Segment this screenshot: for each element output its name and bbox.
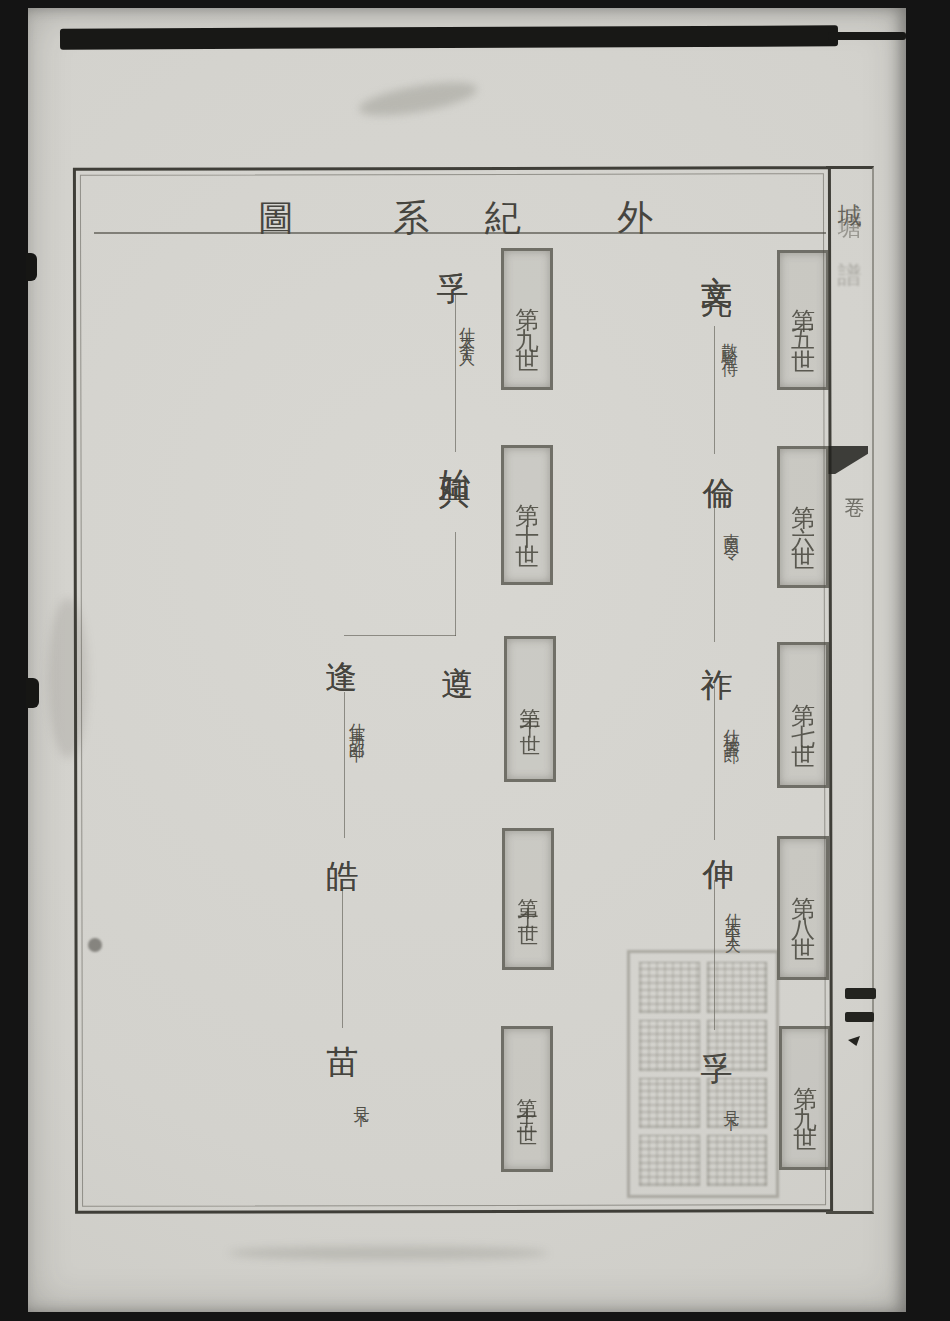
person-office-annotation: 仕秘書郎 [720,716,742,828]
page-title-char: 系 [393,194,429,243]
page-title-char: 紀 [485,194,521,243]
person-name: 皓 [324,834,362,842]
page-title-char: 圖 [258,194,294,243]
person-office-annotation: 散騎常侍 [718,330,740,442]
lineage-line [455,532,456,636]
person-name: 文亮 [698,250,736,266]
lineage-line [714,326,715,454]
lineage-line [714,684,715,840]
seal-glyph-cell [639,1078,700,1129]
paper-sheet: 城塘□譜 卷一 圖 系 紀 外 文亮 散騎常侍 第五世 倫 南昌令 第六世 祚 … [28,8,906,1312]
person-office-annotation: 仕太子舍人 [430,314,478,406]
lineage-line [714,494,715,642]
person-name: 伸 [700,834,738,842]
margin-book-title: 城塘□譜 [832,184,867,252]
margin-book-title-char: 譜 [836,242,864,252]
generation-stamp: 第十二世 [502,828,554,970]
page-edge-tear [26,678,39,708]
margin-book-title-char: 塘 [836,194,864,204]
ink-smudge [845,988,876,999]
seal-glyph-cell [639,962,700,1013]
person-name: 孚 [434,246,472,254]
generation-stamp: 第九世 [501,248,553,390]
seal-glyph-cell [639,1020,700,1071]
see-below-note: 見下 [350,1094,372,1158]
margin-volume-label: 卷一 [840,482,870,498]
lineage-line [342,884,343,1028]
paper-crease [357,76,480,122]
generation-stamp: 第十世 [501,445,553,585]
generation-stamp: 第六世 [777,446,829,588]
person-office-annotation: 南昌令 [720,520,742,610]
seal-glyph-cell [707,1078,768,1129]
binding-shadow-bar [60,25,838,49]
title-rule [94,232,826,234]
collection-seal [627,950,779,1198]
generation-stamp: 第七世 [777,642,829,788]
ink-smudge [845,1012,874,1022]
seal-glyph-cell [707,962,768,1013]
seal-glyph-cell [707,1020,768,1071]
generation-stamp: 第九世 [779,1026,831,1170]
person-name: 始興 [436,444,474,460]
margin-strip [826,166,874,1214]
seal-glyph-cell [707,1135,768,1186]
person-name: 苗 [324,1020,362,1028]
person-name: 祚 [698,642,736,650]
generation-stamp: 第五世 [777,250,829,390]
person-office-annotation: 仕軍功郎中 [318,710,368,802]
margin-book-title-char: □ [836,204,864,242]
page-edge-tear [26,253,37,281]
page-title-char: 外 [617,194,653,243]
person-name: 逢 [323,636,361,644]
person-name: 遵 [439,640,477,648]
paper-smudge [228,1246,548,1260]
seal-glyph-cell [639,1135,700,1186]
binding-shadow-bar [828,32,906,40]
person-name: 倫 [700,452,738,460]
margin-book-title-char: 城 [836,184,864,194]
scanned-genealogy-page: 城塘□譜 卷一 圖 系 紀 外 文亮 散騎常侍 第五世 倫 南昌令 第六世 祚 … [0,0,950,1321]
generation-stamp: 第八世 [777,836,829,980]
generation-stamp: 第十三世 [501,1026,553,1172]
generation-stamp: 第十一世 [504,636,556,782]
